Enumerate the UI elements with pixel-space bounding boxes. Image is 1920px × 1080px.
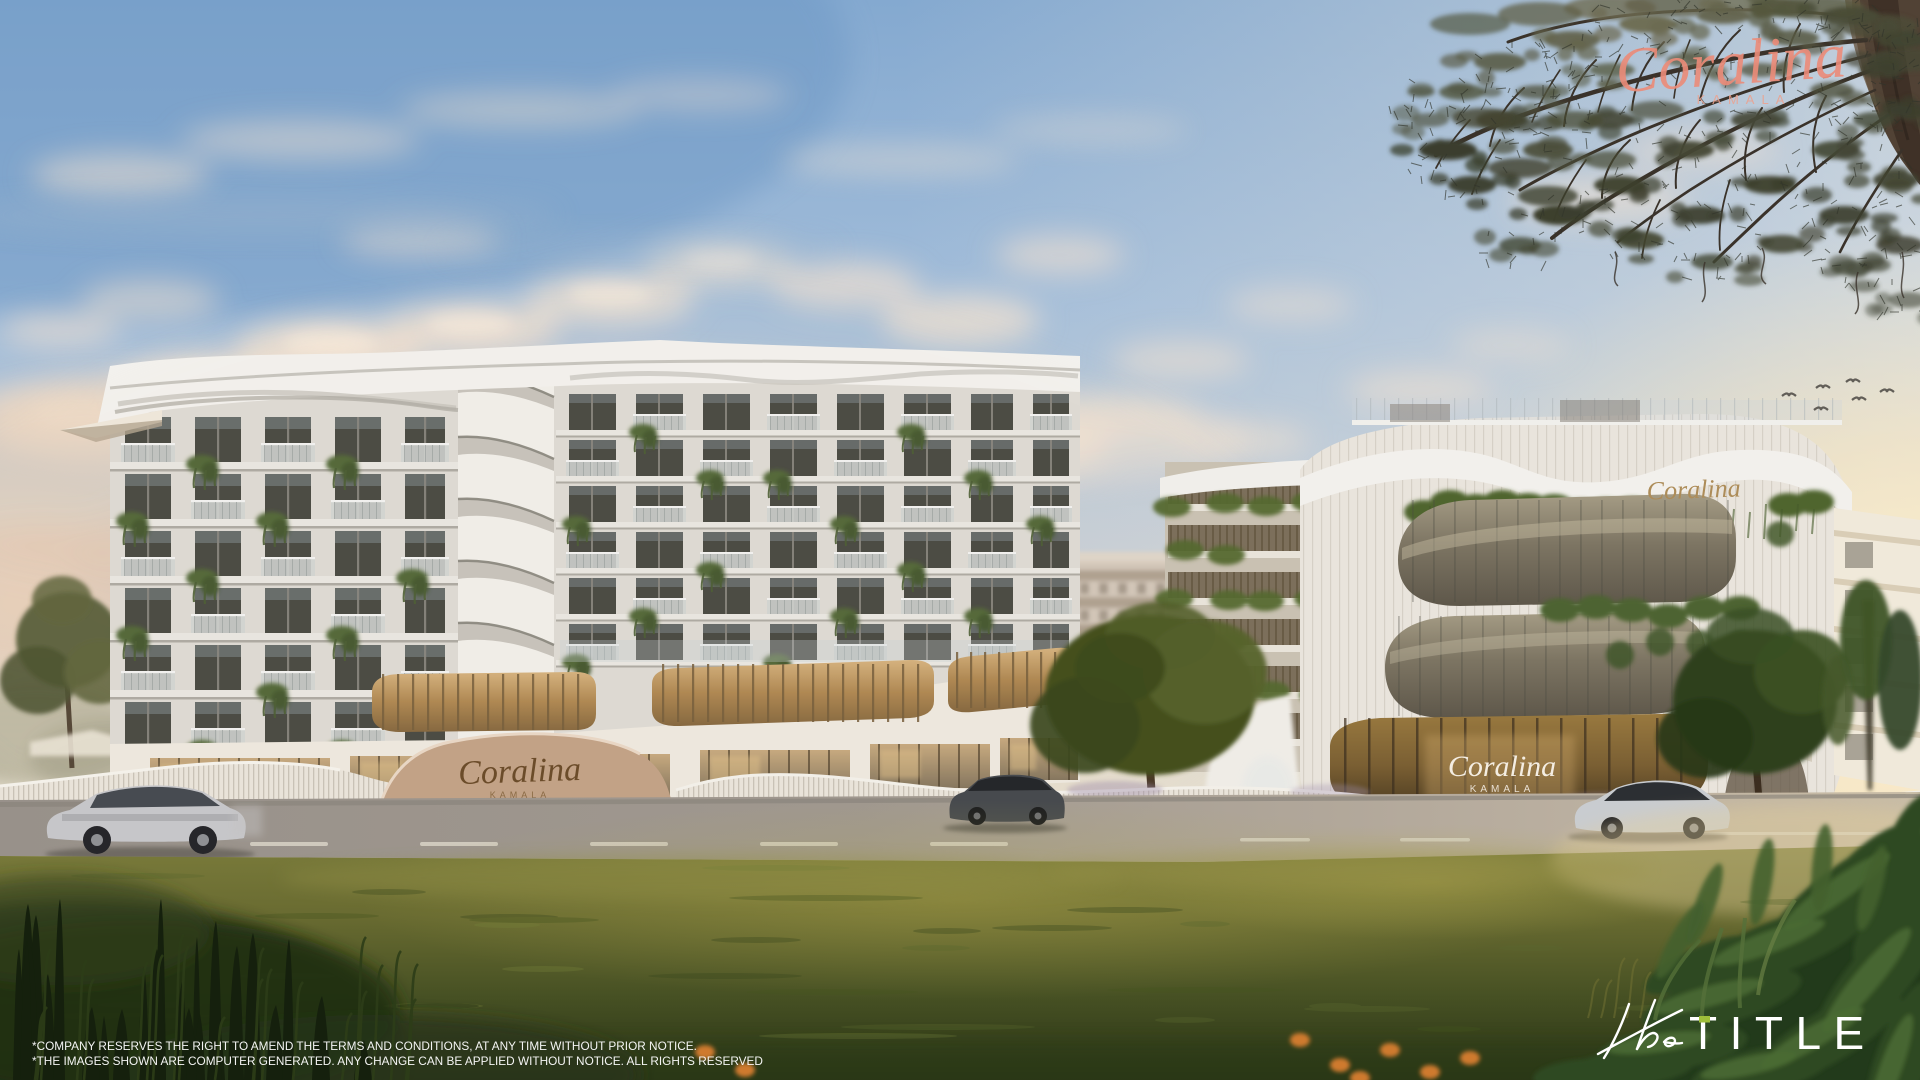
svg-text:*COMPANY RESERVES THE RIGHT TO: *COMPANY RESERVES THE RIGHT TO AMEND THE… [32, 1039, 697, 1053]
svg-text:KAMALA: KAMALA [1697, 92, 1792, 107]
svg-text:TITLE: TITLE [1689, 1007, 1877, 1059]
svg-text:Coralina: Coralina [1646, 473, 1741, 505]
svg-text:Coralina: Coralina [458, 751, 582, 792]
svg-text:KAMALA: KAMALA [1470, 784, 1535, 795]
svg-text:*THE IMAGES SHOWN ARE COMPUTER: *THE IMAGES SHOWN ARE COMPUTER GENERATED… [32, 1054, 763, 1068]
svg-text:Coralina: Coralina [1448, 750, 1556, 783]
